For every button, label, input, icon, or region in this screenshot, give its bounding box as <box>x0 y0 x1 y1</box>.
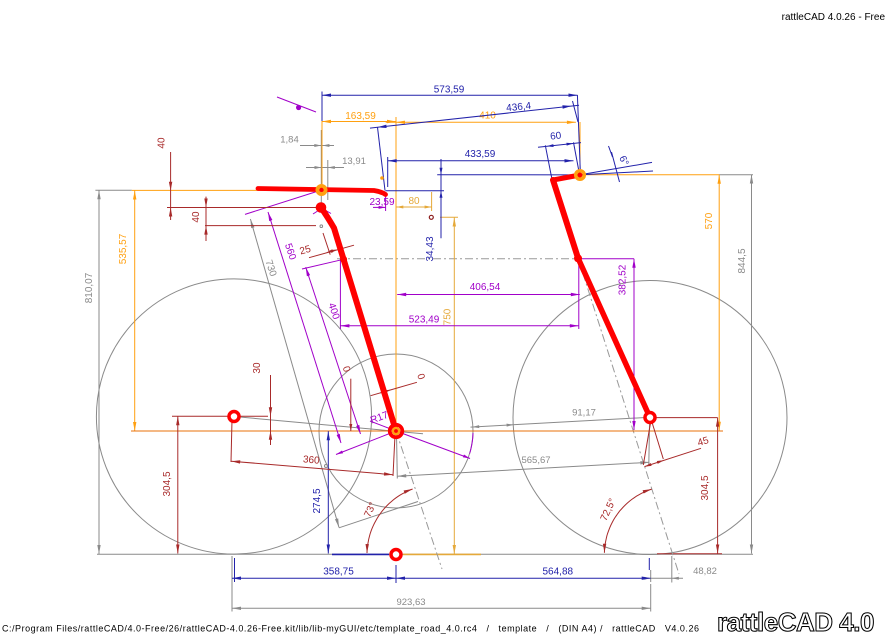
svg-text:565,67: 565,67 <box>521 455 550 466</box>
svg-text:304,5: 304,5 <box>162 471 173 496</box>
svg-text:13,91: 13,91 <box>342 156 366 167</box>
svg-text:163,59: 163,59 <box>345 111 376 122</box>
svg-text:80: 80 <box>408 196 420 207</box>
svg-text:304,5: 304,5 <box>700 475 711 500</box>
svg-text:1,84: 1,84 <box>280 135 299 146</box>
svg-text:564,88: 564,88 <box>543 567 574 578</box>
svg-text:382,52: 382,52 <box>618 264 629 295</box>
svg-text:rattleCAD 4.0.26 - Free: rattleCAD 4.0.26 - Free <box>782 12 886 23</box>
svg-text:750: 750 <box>443 308 454 325</box>
svg-text:810,07: 810,07 <box>84 272 95 303</box>
svg-text:40: 40 <box>157 137 168 149</box>
svg-text:923,63: 923,63 <box>396 597 425 608</box>
svg-text:535,57: 535,57 <box>118 233 129 264</box>
svg-text:30: 30 <box>252 362 263 374</box>
svg-text:40: 40 <box>191 211 202 223</box>
svg-text:433,59: 433,59 <box>465 149 496 160</box>
svg-text:358,75: 358,75 <box>323 567 354 578</box>
svg-text:C:/Program Files/rattleCAD/4.0: C:/Program Files/rattleCAD/4.0-Free/26/r… <box>2 624 699 634</box>
svg-text:360: 360 <box>302 454 320 466</box>
svg-text:23,59: 23,59 <box>369 197 394 208</box>
svg-text:91,17: 91,17 <box>572 408 596 419</box>
svg-text:406,54: 406,54 <box>470 282 501 293</box>
svg-text:60: 60 <box>550 130 563 142</box>
svg-text:34,43: 34,43 <box>425 236 436 261</box>
svg-text:573,59: 573,59 <box>434 85 465 96</box>
svg-text:570: 570 <box>704 212 715 229</box>
svg-text:48,82: 48,82 <box>693 566 717 577</box>
svg-text:844,5: 844,5 <box>737 248 748 273</box>
svg-text:274,5: 274,5 <box>312 488 323 513</box>
svg-text:rattleCAD 4.0: rattleCAD 4.0 <box>717 607 874 637</box>
svg-text:523,49: 523,49 <box>409 315 440 326</box>
